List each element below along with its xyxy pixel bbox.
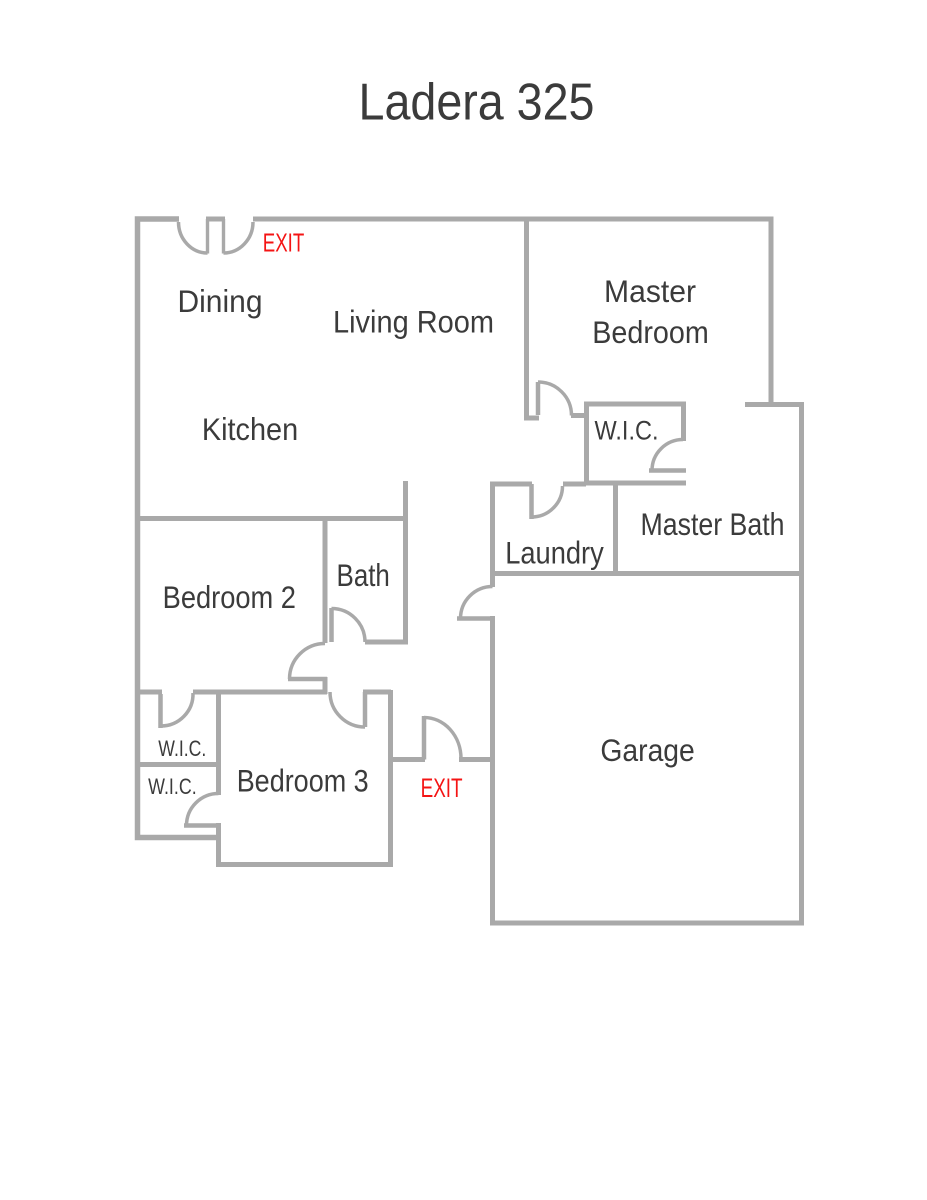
svg-text:Bedroom: Bedroom	[592, 314, 709, 350]
svg-text:Garage: Garage	[600, 732, 694, 768]
svg-text:Ladera 325: Ladera 325	[359, 74, 595, 132]
svg-text:Kitchen: Kitchen	[202, 411, 298, 447]
svg-text:Master Bath: Master Bath	[641, 506, 785, 542]
svg-text:EXIT: EXIT	[421, 773, 463, 803]
svg-text:W.I.C.: W.I.C.	[595, 416, 659, 446]
svg-text:Bedroom 2: Bedroom 2	[163, 579, 296, 615]
svg-text:EXIT: EXIT	[263, 228, 305, 258]
svg-text:Laundry: Laundry	[505, 535, 604, 571]
svg-text:Bedroom 3: Bedroom 3	[237, 763, 369, 799]
svg-text:Bath: Bath	[337, 557, 390, 593]
svg-text:Master: Master	[604, 273, 696, 309]
svg-text:Living Room: Living Room	[333, 304, 494, 340]
svg-text:W.I.C.: W.I.C.	[158, 736, 206, 761]
svg-text:Dining: Dining	[178, 283, 263, 319]
svg-text:W.I.C.: W.I.C.	[148, 774, 197, 799]
